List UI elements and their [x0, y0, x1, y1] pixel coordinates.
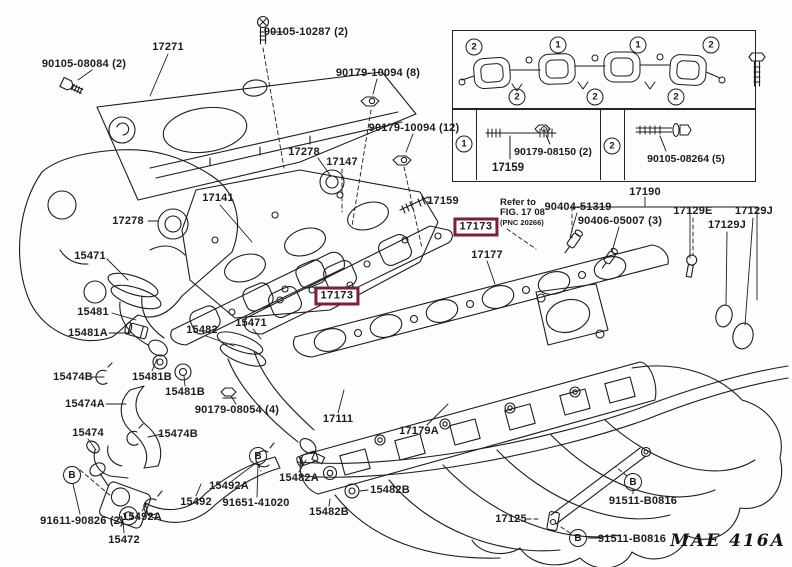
part-number-label: 15474B	[53, 371, 93, 383]
part-number-label: 15474	[72, 427, 104, 439]
part-number-label: 15481B	[165, 386, 205, 398]
part-number-label: 17159	[427, 195, 459, 207]
legend-nut-part-number: 90179-08150 (2)	[514, 146, 592, 158]
part-number-label: 15482	[186, 324, 218, 336]
circled-number: 2	[466, 39, 483, 56]
part-number-label: 17129J	[735, 205, 773, 217]
clamp-icon	[96, 363, 112, 384]
circled-letter: B	[569, 529, 587, 547]
bolt-icon	[60, 77, 84, 95]
part-number-label: 17129E	[673, 205, 712, 217]
legend-divider	[600, 108, 601, 180]
part-number-label: 15482A	[279, 472, 319, 484]
circled-number: 2	[703, 37, 720, 54]
toyota-parts-diagram: 17159 90179-08150 (2) 90105-08264 (5) Re…	[0, 0, 792, 567]
legend-divider	[624, 108, 625, 180]
part-number-label: 15492A	[209, 480, 249, 492]
highlighted-part-label: 17173	[453, 218, 498, 237]
part-number-label: 17271	[152, 41, 184, 53]
circled-number: 2	[509, 89, 526, 106]
circled-number: 2	[587, 89, 604, 106]
nut-icon	[361, 97, 379, 106]
part-number-label: 91511-B0816	[598, 533, 666, 545]
circled-number: 2	[668, 89, 685, 106]
circled-number: 1	[550, 37, 567, 54]
part-number-label: 15474A	[65, 398, 105, 410]
part-number-label: 15492	[180, 496, 212, 508]
circled-letter: B	[624, 473, 642, 491]
part-number-label: 15481B	[132, 371, 172, 383]
part-number-label: 17278	[112, 215, 144, 227]
drawing-code: MAE 416A	[670, 531, 786, 551]
nut-icon	[393, 156, 411, 165]
part-number-label: 17190	[629, 186, 661, 198]
legend-bolt-part-number: 90105-08264 (5)	[647, 153, 725, 165]
part-number-label: 90179-08054 (4)	[195, 404, 279, 416]
highlighted-part-label: 17173	[314, 287, 359, 306]
refer-note: Refer to FIG. 17 08 (PNC 20266)	[500, 198, 545, 228]
part-number-label: 17147	[326, 156, 358, 168]
part-number-label: 91651-41020	[222, 497, 289, 509]
circled-number: 1	[456, 136, 473, 153]
part-number-label: 15474B	[158, 428, 198, 440]
part-number-label: 17125	[495, 513, 527, 525]
part-number-label: 15472	[108, 534, 140, 546]
nut-icon	[221, 388, 236, 398]
part-number-label: 15471	[235, 317, 267, 329]
part-number-label: 17129J	[708, 219, 746, 231]
part-number-label: 17278	[288, 146, 320, 158]
circled-letter: B	[63, 466, 81, 484]
part-number-label: 17177	[471, 249, 503, 261]
sensor-icon	[684, 254, 698, 277]
union-icon	[562, 229, 584, 255]
part-number-label: 91511-B0816	[609, 495, 677, 507]
part-number-label: 90105-08084 (2)	[42, 58, 126, 70]
part-number-label: 17141	[202, 192, 234, 204]
part-number-label: 90406-05007 (3)	[578, 215, 662, 227]
part-number-label: 15471	[74, 250, 106, 262]
part-number-label: 90179-10094 (8)	[336, 67, 420, 79]
part-number-label: 15481	[77, 306, 109, 318]
legend-divider	[476, 108, 477, 180]
part-number-label: 15482B	[309, 506, 349, 518]
part-number-label: 17111	[323, 413, 353, 425]
refer-note-line3: (PNC 20266)	[500, 218, 545, 228]
part-number-label: 90404-51319	[544, 201, 611, 213]
part-number-label: 90179-10094 (12)	[369, 122, 460, 134]
legend-stud-part-number: 17159	[492, 162, 524, 174]
circled-number: 1	[630, 37, 647, 54]
part-number-label: 90105-10287 (2)	[264, 26, 348, 38]
part-number-label: 15482B	[370, 484, 410, 496]
part-number-label: 91611-90826 (2)	[40, 515, 124, 527]
part-number-label: 15492A	[122, 511, 162, 523]
refer-note-line2: FIG. 17 08	[500, 208, 545, 218]
circled-letter: B	[249, 447, 267, 465]
circled-number: 2	[604, 138, 621, 155]
part-number-label: 17179A	[399, 425, 439, 437]
part-number-label: 15481A	[68, 327, 108, 339]
